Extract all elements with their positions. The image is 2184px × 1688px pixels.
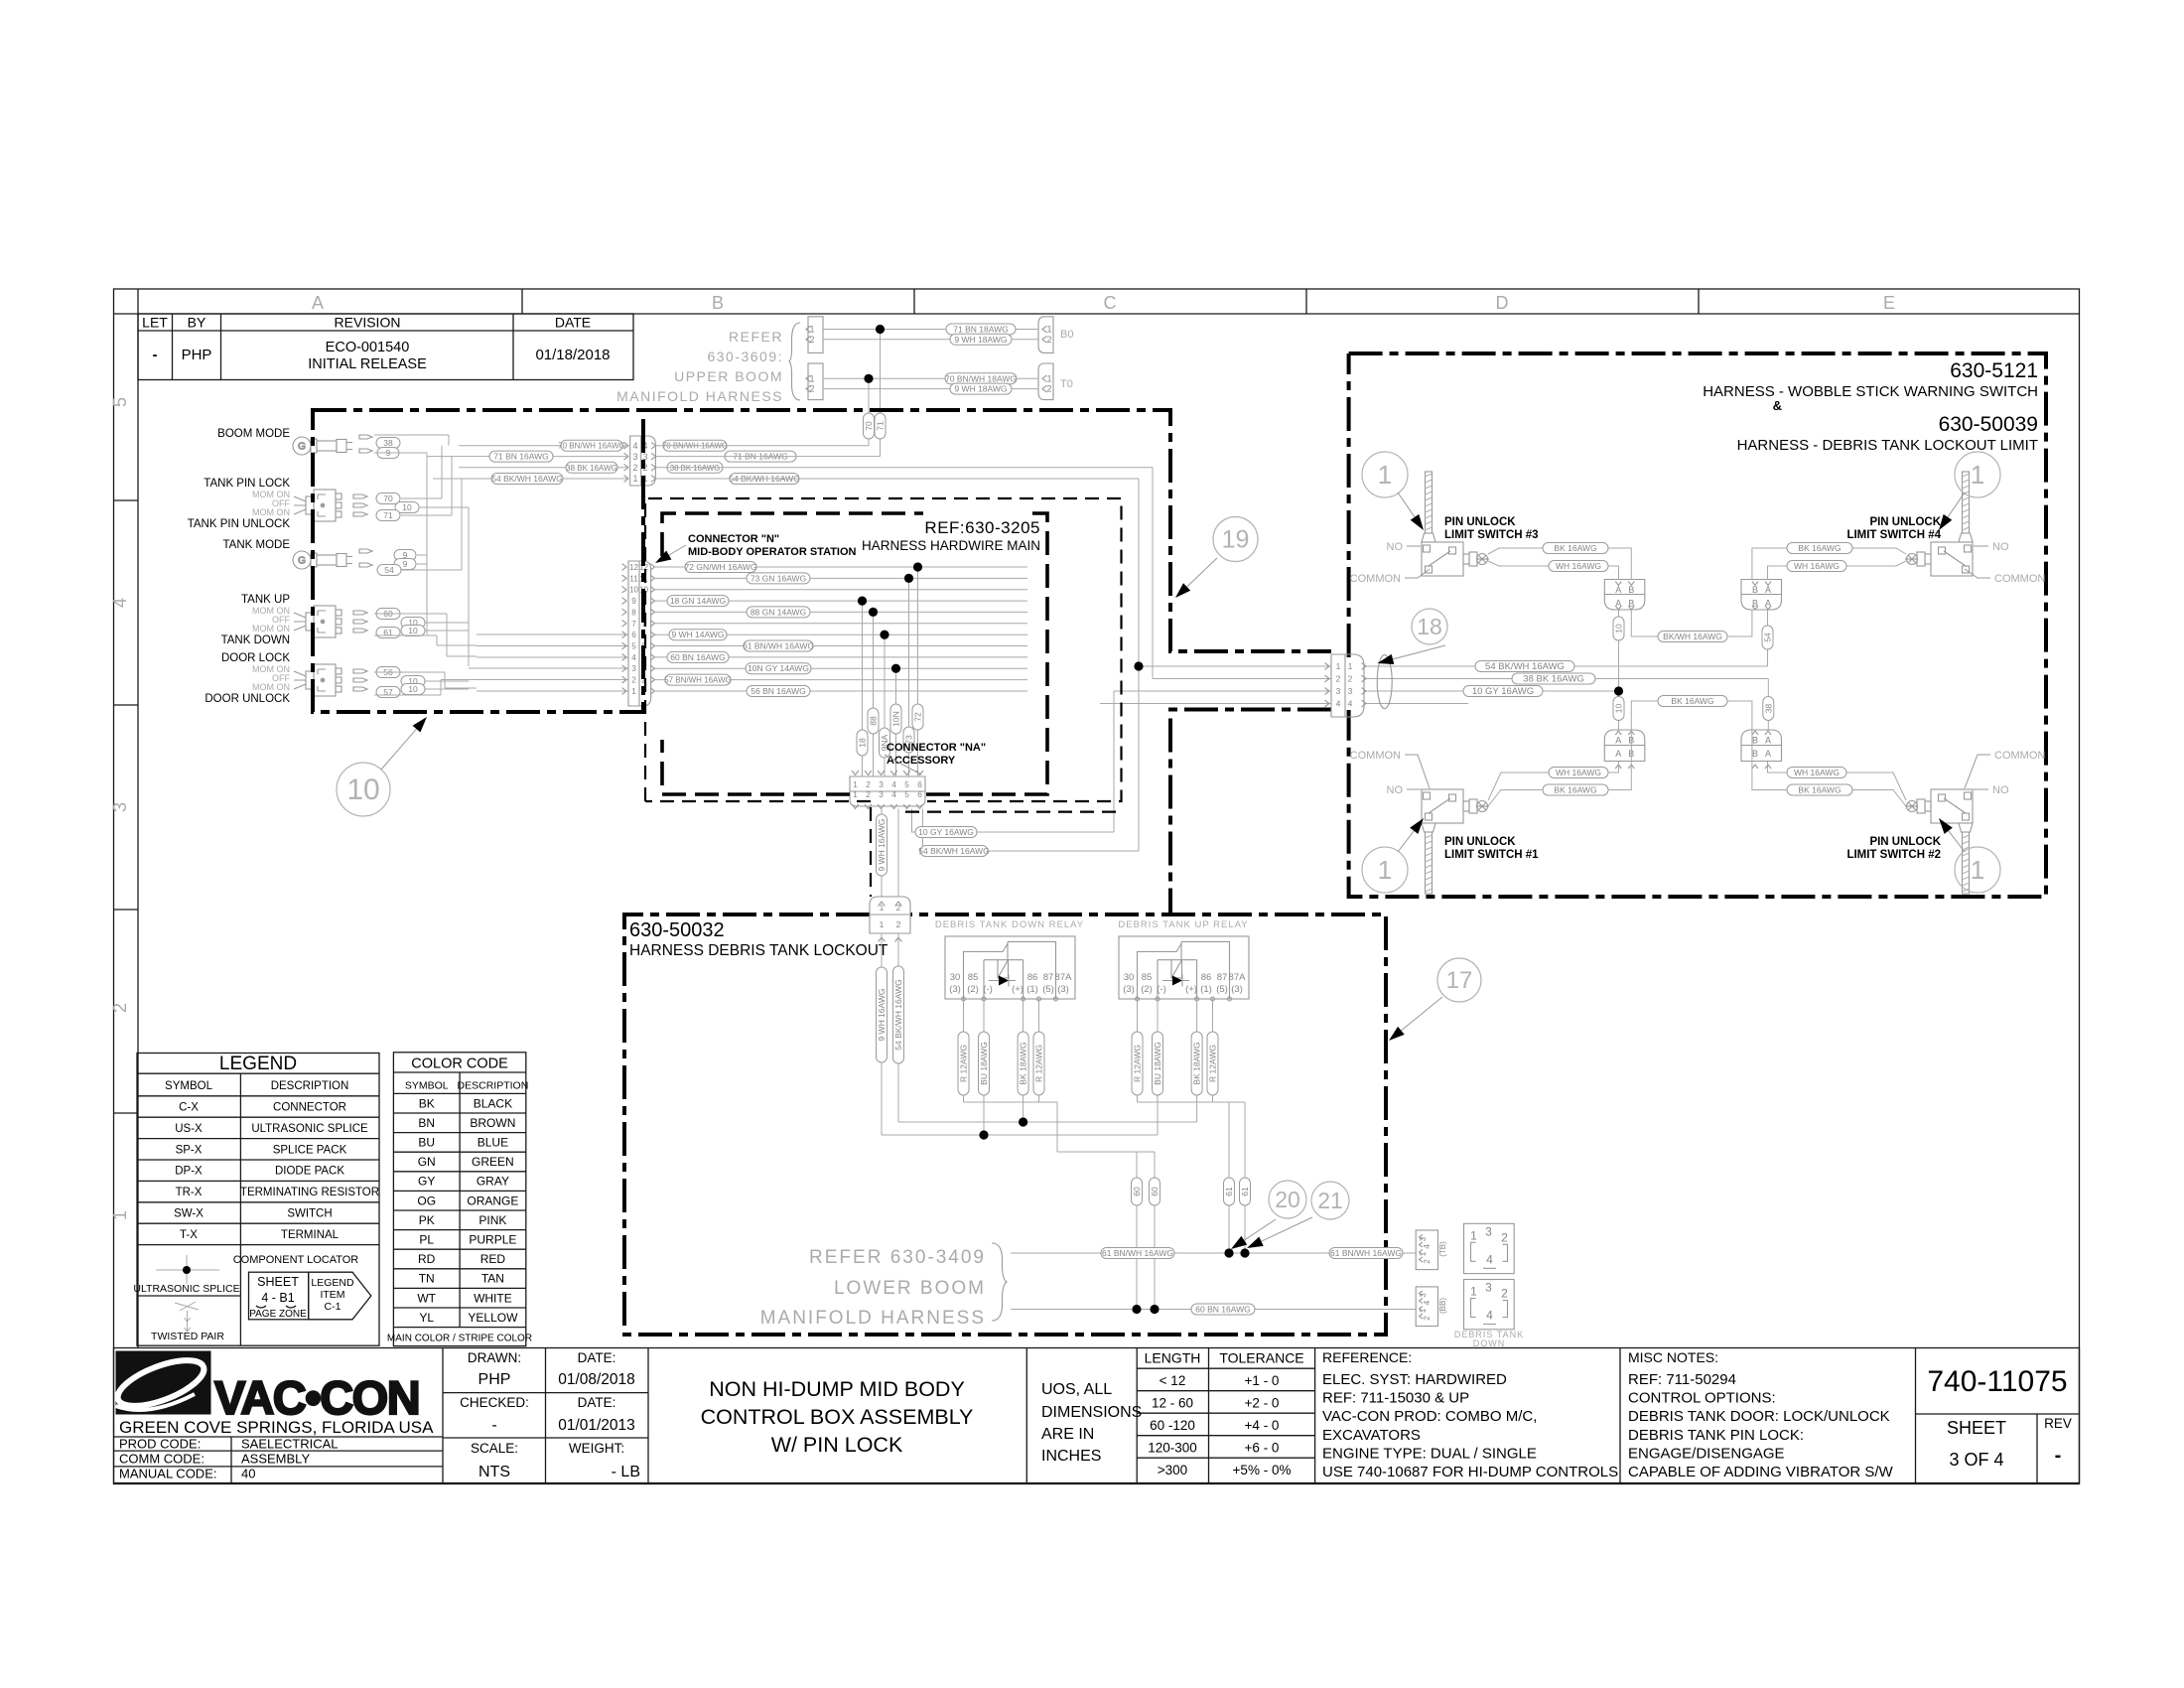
- svg-text:61 BN/WH 16AWG: 61 BN/WH 16AWG: [1330, 1248, 1402, 1258]
- svg-text:BK 16AWG: BK 16AWG: [1798, 785, 1841, 795]
- svg-text:DATE:: DATE:: [578, 1395, 616, 1410]
- svg-text:HARNESS - DEBRIS TANK LOCKOUT: HARNESS - DEBRIS TANK LOCKOUT LIMIT: [1737, 437, 2038, 454]
- svg-text:TR-X: TR-X: [176, 1187, 203, 1198]
- svg-text:38: 38: [1763, 704, 1773, 714]
- svg-text:7: 7: [631, 620, 636, 629]
- svg-text:A: A: [1765, 585, 1771, 595]
- svg-text:1: 1: [880, 919, 885, 929]
- svg-text:B: B: [1628, 585, 1634, 595]
- svg-text:DESCRIPTION: DESCRIPTION: [458, 1080, 529, 1092]
- svg-text:INCHES: INCHES: [1041, 1448, 1101, 1465]
- svg-text:9 WH 14AWG: 9 WH 14AWG: [671, 630, 724, 639]
- svg-text:BU 18AWG: BU 18AWG: [1153, 1042, 1162, 1085]
- svg-text:1: 1: [1470, 1285, 1477, 1299]
- svg-text:WH 16AWG: WH 16AWG: [1556, 561, 1601, 571]
- svg-text:B: B: [1752, 749, 1758, 759]
- svg-text:2: 2: [896, 919, 901, 929]
- svg-text:NON HI-DUMP MID BODY: NON HI-DUMP MID BODY: [709, 1377, 965, 1401]
- svg-text:ENGINE TYPE: DUAL / SINGLE: ENGINE TYPE: DUAL / SINGLE: [1322, 1445, 1537, 1462]
- svg-text:60 BN 16AWG: 60 BN 16AWG: [670, 652, 725, 662]
- svg-text:21: 21: [1317, 1188, 1343, 1213]
- svg-text:CHECKED:: CHECKED:: [460, 1395, 529, 1410]
- svg-text:BU: BU: [418, 1136, 435, 1150]
- svg-text:9 WH 18AWG: 9 WH 18AWG: [954, 384, 1007, 394]
- svg-text:70: 70: [383, 493, 393, 503]
- svg-text:REV: REV: [2044, 1416, 2072, 1431]
- svg-text:GREEN: GREEN: [472, 1155, 514, 1169]
- svg-text:ULTRASONIC SPLICE: ULTRASONIC SPLICE: [251, 1123, 368, 1135]
- svg-text:WH 16AWG: WH 16AWG: [1556, 768, 1601, 777]
- svg-text:60: 60: [1132, 1187, 1142, 1196]
- svg-text:40: 40: [241, 1466, 255, 1480]
- svg-text:9: 9: [403, 559, 408, 569]
- svg-text:PK: PK: [419, 1213, 435, 1227]
- svg-text:60: 60: [1150, 1187, 1160, 1196]
- svg-text:LET: LET: [142, 315, 168, 331]
- svg-text:WEIGHT:: WEIGHT:: [569, 1441, 624, 1456]
- svg-text:5: 5: [904, 790, 909, 799]
- svg-text:VAC-CON PROD: COMBO M/C,: VAC-CON PROD: COMBO M/C,: [1322, 1408, 1537, 1425]
- svg-text:72 GN/WH 16AWG: 72 GN/WH 16AWG: [685, 562, 757, 572]
- svg-text:1: 1: [1378, 855, 1392, 885]
- svg-text:G: G: [298, 556, 306, 567]
- svg-text:1: 1: [1971, 460, 1984, 490]
- svg-text:BK 18AWG: BK 18AWG: [1192, 1042, 1202, 1084]
- svg-text:10 GY 16AWG: 10 GY 16AWG: [1472, 686, 1534, 697]
- svg-text:BK 18AWG: BK 18AWG: [1019, 1042, 1028, 1084]
- svg-text:BK 16AWG: BK 16AWG: [1554, 543, 1596, 553]
- svg-text:HARNESS - WOBBLE STICK WARNING: HARNESS - WOBBLE STICK WARNING SWITCH: [1703, 383, 2038, 400]
- svg-text:B: B: [1752, 599, 1758, 609]
- svg-text:BROWN: BROWN: [470, 1116, 515, 1130]
- svg-text:PHP: PHP: [182, 347, 212, 363]
- svg-text:70 BN/WH 18AWG: 70 BN/WH 18AWG: [945, 373, 1017, 383]
- svg-text:(3): (3): [1231, 984, 1243, 995]
- svg-text:MAIN COLOR / STRIPE COLOR: MAIN COLOR / STRIPE COLOR: [387, 1334, 532, 1344]
- svg-text:10: 10: [629, 586, 639, 595]
- svg-text:BK 16AWG: BK 16AWG: [1554, 785, 1596, 795]
- svg-text:WH 16AWG: WH 16AWG: [1794, 561, 1840, 571]
- svg-text:4: 4: [1348, 699, 1353, 709]
- svg-text:54 BK/WH 16AWG: 54 BK/WH 16AWG: [1485, 661, 1565, 672]
- svg-text:BU 18AWG: BU 18AWG: [979, 1042, 989, 1085]
- svg-text:BN: BN: [418, 1116, 435, 1130]
- svg-text:2: 2: [1423, 1259, 1432, 1264]
- svg-text:TANK DOWN: TANK DOWN: [221, 634, 290, 646]
- svg-text:W/ PIN LOCK: W/ PIN LOCK: [771, 1433, 903, 1457]
- svg-text:DEBRIS TANK DOOR: LOCK/UNLOCK: DEBRIS TANK DOOR: LOCK/UNLOCK: [1628, 1408, 1890, 1425]
- svg-text:D: D: [1496, 293, 1509, 313]
- svg-text:01/18/2018: 01/18/2018: [535, 347, 610, 363]
- svg-text:1: 1: [1336, 661, 1341, 671]
- svg-text:2: 2: [809, 384, 814, 394]
- svg-text:61 BN/WH 16AWG: 61 BN/WH 16AWG: [1102, 1248, 1173, 1258]
- svg-text:B0: B0: [1060, 329, 1073, 341]
- svg-text:(+): (+): [1012, 984, 1024, 995]
- svg-text:PIN UNLOCK: PIN UNLOCK: [1869, 516, 1941, 528]
- svg-text:(1): (1): [1200, 984, 1212, 995]
- svg-text:2: 2: [1046, 335, 1051, 345]
- svg-text:30: 30: [1124, 972, 1135, 983]
- svg-text:HARNESS DEBRIS TANK LOCKOUT: HARNESS DEBRIS TANK LOCKOUT: [629, 942, 888, 959]
- svg-text:CONNECTOR "N": CONNECTOR "N": [688, 533, 779, 545]
- svg-text:PINK: PINK: [478, 1213, 506, 1227]
- svg-text:2: 2: [110, 1003, 130, 1013]
- svg-text:4: 4: [1423, 1300, 1432, 1305]
- svg-text:REF: 711-15030 & UP: REF: 711-15030 & UP: [1322, 1390, 1469, 1407]
- svg-text:630-3609:: 630-3609:: [707, 349, 783, 364]
- svg-text:COMPONENT LOCATOR: COMPONENT LOCATOR: [233, 1254, 359, 1266]
- svg-text:1: 1: [853, 790, 858, 799]
- svg-text:01/01/2013: 01/01/2013: [558, 1417, 635, 1434]
- svg-text:9 WH 18AWG: 9 WH 18AWG: [954, 335, 1007, 345]
- svg-text:87: 87: [1217, 972, 1228, 983]
- svg-text:9 WH 16AWG: 9 WH 16AWG: [877, 818, 887, 871]
- svg-text:1: 1: [1046, 373, 1051, 383]
- svg-text:BK 16AWG: BK 16AWG: [1798, 543, 1841, 553]
- svg-text:WT: WT: [417, 1291, 436, 1305]
- svg-text:2: 2: [1423, 1316, 1432, 1321]
- svg-text:YELLOW: YELLOW: [468, 1311, 518, 1325]
- svg-text:(3): (3): [1057, 984, 1069, 995]
- svg-text:TANK PIN UNLOCK: TANK PIN UNLOCK: [188, 518, 291, 530]
- svg-text:2: 2: [866, 780, 871, 789]
- svg-text:SCALE:: SCALE:: [471, 1441, 518, 1456]
- svg-text:DIMENSIONS: DIMENSIONS: [1041, 1404, 1142, 1421]
- svg-text:10N GY 14AWG: 10N GY 14AWG: [748, 663, 809, 673]
- svg-text:DIODE PACK: DIODE PACK: [275, 1166, 344, 1178]
- svg-text:18: 18: [858, 738, 868, 748]
- svg-text:TAN: TAN: [481, 1272, 504, 1286]
- svg-text:6: 6: [631, 631, 636, 639]
- svg-text:NO: NO: [1387, 784, 1404, 796]
- svg-text:TANK PIN LOCK: TANK PIN LOCK: [204, 478, 290, 490]
- svg-text:(3): (3): [1123, 984, 1135, 995]
- svg-text:-: -: [2055, 1445, 2062, 1467]
- svg-text:MISC NOTES:: MISC NOTES:: [1628, 1349, 1718, 1365]
- svg-text:10: 10: [408, 626, 418, 635]
- svg-text:TOLERANCE: TOLERANCE: [1219, 1350, 1303, 1366]
- svg-text:>300: >300: [1158, 1463, 1187, 1477]
- svg-text:10: 10: [1614, 704, 1624, 714]
- svg-text:DOWN: DOWN: [1473, 1338, 1506, 1348]
- svg-text:3: 3: [879, 780, 884, 789]
- svg-text:PIN UNLOCK: PIN UNLOCK: [1444, 836, 1516, 848]
- svg-text:71: 71: [876, 421, 886, 431]
- svg-text:LEGEND: LEGEND: [219, 1054, 297, 1074]
- svg-text:70: 70: [864, 421, 874, 431]
- svg-text:2: 2: [1501, 1287, 1508, 1301]
- svg-text:2: 2: [1501, 1230, 1508, 1244]
- svg-text:3: 3: [1485, 1281, 1492, 1295]
- svg-text:6: 6: [917, 790, 922, 799]
- svg-text:LIMIT SWITCH #1: LIMIT SWITCH #1: [1444, 849, 1539, 861]
- svg-text:12 - 60: 12 - 60: [1152, 1396, 1193, 1411]
- svg-text:71: 71: [383, 510, 393, 520]
- svg-text:5: 5: [904, 780, 909, 789]
- svg-text:ELEC. SYST: HARDWIRED: ELEC. SYST: HARDWIRED: [1322, 1371, 1507, 1388]
- svg-text:2: 2: [1348, 674, 1353, 684]
- svg-text:LIMIT SWITCH #2: LIMIT SWITCH #2: [1846, 849, 1941, 861]
- svg-text:NTS: NTS: [478, 1464, 510, 1480]
- svg-text:REFER: REFER: [729, 329, 783, 345]
- svg-text:71 BN 18AWG: 71 BN 18AWG: [953, 325, 1008, 335]
- svg-text:86: 86: [1027, 972, 1038, 983]
- svg-text:3 OF 4: 3 OF 4: [1949, 1450, 2003, 1470]
- svg-text:9 WH 16AWG: 9 WH 16AWG: [877, 988, 887, 1041]
- svg-text:MID-BODY OPERATOR STATION: MID-BODY OPERATOR STATION: [688, 546, 857, 558]
- svg-text:A: A: [1615, 599, 1621, 609]
- svg-text:R 12AWG: R 12AWG: [1034, 1045, 1044, 1082]
- svg-text:YL: YL: [419, 1311, 434, 1325]
- svg-text:A: A: [1765, 599, 1771, 609]
- svg-text:-: -: [491, 1417, 496, 1434]
- svg-text:SP-X: SP-X: [176, 1144, 203, 1156]
- svg-text:73 GN 16AWG: 73 GN 16AWG: [751, 573, 806, 583]
- svg-text:US-X: US-X: [175, 1123, 203, 1135]
- svg-text:COMMON: COMMON: [1350, 750, 1401, 762]
- svg-text:PAGE ZONE: PAGE ZONE: [249, 1309, 307, 1320]
- svg-text:GREEN COVE SPRINGS, FLORIDA US: GREEN COVE SPRINGS, FLORIDA USA: [119, 1418, 434, 1437]
- svg-text:B: B: [1628, 599, 1634, 609]
- svg-text:B: B: [712, 293, 724, 313]
- svg-text:(2): (2): [967, 984, 979, 995]
- svg-text:2: 2: [632, 463, 637, 473]
- svg-text:19: 19: [1222, 526, 1250, 554]
- svg-text:PIN UNLOCK: PIN UNLOCK: [1444, 516, 1516, 528]
- svg-text:61: 61: [1224, 1187, 1234, 1196]
- svg-text:70 BN/WH 16AWG: 70 BN/WH 16AWG: [558, 442, 625, 451]
- svg-text:COMMON: COMMON: [1994, 573, 2045, 585]
- svg-text:1: 1: [110, 1210, 130, 1220]
- svg-text:LIMIT SWITCH #3: LIMIT SWITCH #3: [1444, 529, 1539, 541]
- svg-text:C-1: C-1: [325, 1301, 341, 1313]
- svg-text:87A: 87A: [1055, 972, 1073, 983]
- svg-text:GRAY: GRAY: [477, 1175, 509, 1189]
- svg-text:B: B: [1752, 585, 1758, 595]
- svg-text:REF: 711-50294: REF: 711-50294: [1628, 1371, 1736, 1388]
- svg-text:+1 - 0: +1 - 0: [1245, 1373, 1280, 1388]
- svg-text:85: 85: [1142, 972, 1153, 983]
- svg-text:20: 20: [1275, 1187, 1300, 1212]
- svg-text:BLACK: BLACK: [474, 1096, 512, 1110]
- svg-text:ACCESSORY: ACCESSORY: [887, 755, 956, 767]
- svg-text:COLOR CODE: COLOR CODE: [411, 1056, 508, 1072]
- svg-text:PIN UNLOCK: PIN UNLOCK: [1869, 836, 1941, 848]
- svg-text:MANUAL CODE:: MANUAL CODE:: [119, 1466, 216, 1480]
- svg-text:INITIAL RELEASE: INITIAL RELEASE: [308, 356, 427, 372]
- svg-text:88: 88: [869, 716, 879, 726]
- svg-text:1: 1: [853, 780, 858, 789]
- svg-text:3: 3: [1336, 686, 1341, 696]
- svg-text:MOM ON: MOM ON: [252, 624, 290, 633]
- svg-text:ULTRASONIC SPLICE: ULTRASONIC SPLICE: [133, 1283, 239, 1295]
- svg-text:G: G: [298, 442, 306, 453]
- svg-text:1: 1: [631, 687, 636, 696]
- svg-text:3: 3: [1348, 686, 1353, 696]
- svg-text:PHP: PHP: [478, 1371, 511, 1388]
- svg-text:18 GN 14AWG: 18 GN 14AWG: [670, 596, 726, 606]
- svg-text:CONNECTOR: CONNECTOR: [273, 1102, 346, 1114]
- svg-text:GN: GN: [418, 1155, 436, 1169]
- svg-text:5: 5: [631, 642, 636, 651]
- svg-text:54: 54: [1763, 633, 1773, 642]
- svg-text:11: 11: [629, 574, 638, 583]
- svg-text:DRAWN:: DRAWN:: [468, 1350, 521, 1365]
- svg-text:A: A: [1765, 749, 1771, 759]
- svg-text:BK 16AWG: BK 16AWG: [1671, 696, 1713, 706]
- svg-text:CONTROL OPTIONS:: CONTROL OPTIONS:: [1628, 1390, 1776, 1407]
- svg-text:REFERENCE:: REFERENCE:: [1322, 1349, 1412, 1365]
- svg-text:(+): (+): [1185, 984, 1197, 995]
- svg-text:SWITCH: SWITCH: [287, 1208, 332, 1220]
- svg-text:DATE: DATE: [555, 315, 591, 331]
- svg-text:REFER 630-3409: REFER 630-3409: [809, 1247, 986, 1268]
- svg-text:OG: OG: [417, 1194, 436, 1207]
- svg-text:- LB: - LB: [612, 1464, 640, 1480]
- svg-text:8: 8: [631, 608, 636, 617]
- svg-text:54 BK/WH 16AWG: 54 BK/WH 16AWG: [918, 846, 989, 856]
- svg-text:60 -120: 60 -120: [1150, 1418, 1195, 1433]
- svg-text:RD: RD: [418, 1252, 436, 1266]
- svg-text:LEGEND: LEGEND: [311, 1277, 354, 1289]
- svg-text:01/08/2018: 01/08/2018: [558, 1371, 635, 1388]
- svg-text:ITEM: ITEM: [320, 1289, 344, 1301]
- svg-text:10: 10: [402, 502, 412, 512]
- svg-text:NO: NO: [1992, 784, 2009, 796]
- svg-text:54: 54: [384, 565, 394, 575]
- svg-text:1: 1: [1971, 855, 1984, 885]
- svg-text:R 12AWG: R 12AWG: [1133, 1045, 1143, 1082]
- svg-text:B: B: [1752, 736, 1758, 746]
- svg-text:4: 4: [1423, 1244, 1432, 1249]
- svg-text:(-): (-): [1157, 984, 1166, 995]
- svg-text:630-50032: 630-50032: [629, 919, 725, 941]
- svg-text:LENGTH: LENGTH: [1145, 1350, 1201, 1366]
- svg-text:BK/WH 16AWG: BK/WH 16AWG: [1663, 632, 1722, 641]
- svg-text:(BB): (BB): [1438, 1298, 1447, 1314]
- svg-text:1: 1: [1470, 1228, 1477, 1242]
- svg-text:4: 4: [1336, 699, 1341, 709]
- svg-text:BK: BK: [419, 1096, 435, 1110]
- svg-text:1: 1: [809, 325, 814, 335]
- svg-text:630-5121: 630-5121: [1950, 359, 2038, 382]
- svg-text:120-300: 120-300: [1148, 1441, 1197, 1456]
- svg-text:+2 - 0: +2 - 0: [1245, 1396, 1280, 1411]
- svg-text:COMMON: COMMON: [1994, 750, 2045, 762]
- svg-text:4: 4: [1486, 1252, 1493, 1266]
- svg-text:A: A: [1765, 736, 1771, 746]
- svg-text:4: 4: [891, 790, 896, 799]
- svg-text:(3): (3): [949, 984, 961, 995]
- svg-text:COMM CODE:: COMM CODE:: [119, 1451, 205, 1466]
- svg-text:18: 18: [1417, 614, 1442, 639]
- svg-text:6: 6: [917, 780, 922, 789]
- svg-text:+5% - 0%: +5% - 0%: [1233, 1463, 1292, 1477]
- svg-text:61: 61: [1240, 1187, 1250, 1196]
- svg-text:TWISTED PAIR: TWISTED PAIR: [151, 1331, 224, 1342]
- svg-text:A: A: [1615, 585, 1621, 595]
- svg-text:12: 12: [629, 563, 639, 572]
- svg-text:(5): (5): [1042, 984, 1054, 995]
- svg-text:PURPLE: PURPLE: [469, 1233, 516, 1247]
- svg-text:A: A: [312, 293, 324, 313]
- svg-text:MANIFOLD HARNESS: MANIFOLD HARNESS: [760, 1308, 986, 1329]
- svg-text:DP-X: DP-X: [175, 1166, 203, 1178]
- svg-text:(-): (-): [983, 984, 993, 995]
- svg-text:DATE:: DATE:: [578, 1350, 616, 1365]
- svg-text:10N: 10N: [891, 711, 901, 727]
- svg-text:ASSEMBLY: ASSEMBLY: [241, 1451, 310, 1466]
- svg-text:1: 1: [1348, 661, 1353, 671]
- svg-text:TANK UP: TANK UP: [241, 594, 290, 606]
- svg-text:DEBRIS TANK DOWN RELAY: DEBRIS TANK DOWN RELAY: [935, 919, 1084, 930]
- svg-text:2: 2: [1336, 674, 1341, 684]
- svg-text:SHEET: SHEET: [257, 1275, 299, 1289]
- svg-text:4: 4: [631, 653, 636, 662]
- svg-text:COMMON: COMMON: [1350, 573, 1401, 585]
- svg-text:2: 2: [631, 676, 636, 685]
- svg-text:57 BN/WH 16AWG: 57 BN/WH 16AWG: [664, 676, 732, 685]
- svg-text:ORANGE: ORANGE: [467, 1194, 518, 1207]
- svg-text:SYMBOL: SYMBOL: [165, 1080, 213, 1092]
- svg-text:PL: PL: [419, 1233, 434, 1247]
- svg-text:WH 16AWG: WH 16AWG: [1794, 768, 1840, 777]
- svg-text:38 BK 16AWG: 38 BK 16AWG: [566, 464, 617, 473]
- svg-text:C: C: [1104, 293, 1117, 313]
- svg-text:TERMINAL: TERMINAL: [281, 1229, 340, 1241]
- svg-text:+6 - 0: +6 - 0: [1245, 1441, 1280, 1456]
- svg-text:LIMIT SWITCH #4: LIMIT SWITCH #4: [1846, 529, 1941, 541]
- svg-text:TERMINATING RESISTOR: TERMINATING RESISTOR: [240, 1187, 379, 1198]
- svg-text:ARE IN: ARE IN: [1041, 1426, 1094, 1443]
- svg-text:USE 740-10687 FOR HI-DUMP CONT: USE 740-10687 FOR HI-DUMP CONTROLS: [1322, 1464, 1618, 1480]
- svg-text:T-X: T-X: [180, 1229, 198, 1241]
- svg-text:BLUE: BLUE: [478, 1136, 508, 1150]
- svg-text:DEBRIS TANK UP RELAY: DEBRIS TANK UP RELAY: [1118, 919, 1248, 930]
- svg-text:1: 1: [1046, 325, 1051, 335]
- svg-text:MOM ON: MOM ON: [252, 682, 290, 692]
- svg-text:1: 1: [809, 373, 814, 383]
- svg-text:TN: TN: [419, 1272, 435, 1286]
- svg-text:88 GN 14AWG: 88 GN 14AWG: [751, 607, 806, 617]
- svg-text:SYMBOL: SYMBOL: [405, 1080, 449, 1092]
- svg-text:PROD CODE:: PROD CODE:: [119, 1437, 201, 1452]
- svg-text:(5): (5): [1216, 984, 1228, 995]
- svg-text:85: 85: [968, 972, 979, 983]
- svg-text:VAC•CON: VAC•CON: [214, 1371, 419, 1424]
- svg-text:3: 3: [110, 802, 130, 812]
- svg-text:56 BN 16AWG: 56 BN 16AWG: [751, 686, 805, 696]
- svg-text:EXCAVATORS: EXCAVATORS: [1322, 1427, 1421, 1444]
- svg-text:740-11075: 740-11075: [1927, 1365, 2067, 1398]
- svg-text:4: 4: [891, 780, 896, 789]
- svg-text:38 BK 16AWG: 38 BK 16AWG: [1523, 674, 1583, 685]
- svg-text:RED: RED: [480, 1252, 506, 1266]
- svg-text:A: A: [1615, 749, 1621, 759]
- svg-text:4 - B1: 4 - B1: [261, 1291, 294, 1305]
- svg-text:NO: NO: [1387, 541, 1404, 553]
- svg-text:3: 3: [1485, 1224, 1492, 1238]
- svg-text:DOOR UNLOCK: DOOR UNLOCK: [205, 693, 290, 705]
- svg-text:T0: T0: [1060, 378, 1073, 390]
- svg-text:(2): (2): [1141, 984, 1153, 995]
- svg-text:SPLICE PACK: SPLICE PACK: [273, 1144, 347, 1156]
- svg-text:SHEET: SHEET: [1947, 1418, 2006, 1438]
- svg-text:10 GY 16AWG: 10 GY 16AWG: [918, 827, 974, 837]
- svg-text:10: 10: [408, 684, 418, 694]
- svg-text:54 BK/WH 16AWG: 54 BK/WH 16AWG: [893, 979, 903, 1050]
